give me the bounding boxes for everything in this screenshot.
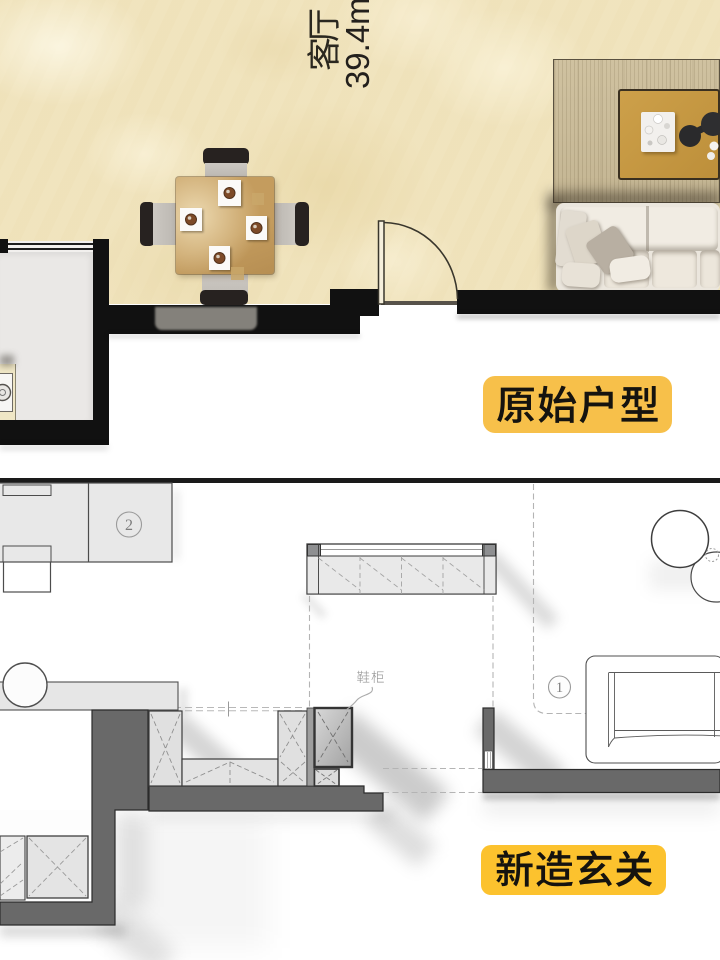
svg-text:2: 2 bbox=[125, 517, 133, 534]
svg-text:1: 1 bbox=[556, 680, 563, 696]
svg-text:39.4m²: 39.4m² bbox=[339, 0, 376, 89]
